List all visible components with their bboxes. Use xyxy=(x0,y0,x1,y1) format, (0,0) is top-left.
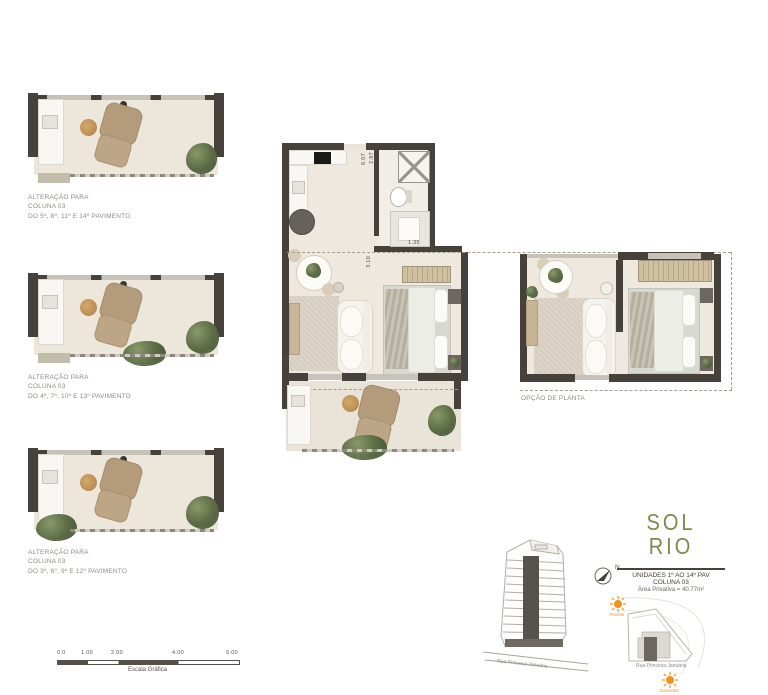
dim-label: 6.07 xyxy=(361,153,367,165)
wall xyxy=(282,143,289,381)
option-plan-caption: OPÇÃO DE PLANTA xyxy=(521,394,585,403)
side-table xyxy=(80,299,97,316)
sofa-cushion xyxy=(585,304,607,338)
sol-rio-logo: SOL RIO xyxy=(617,512,725,559)
unit-info-line: COLUNA 03 xyxy=(617,579,725,586)
sun-east-label: Nascente xyxy=(660,688,679,693)
side-table xyxy=(342,395,359,412)
scale-bar-strip xyxy=(57,660,240,665)
console xyxy=(289,303,300,355)
wall xyxy=(214,93,224,157)
balcony-plan-2 xyxy=(28,273,224,369)
window xyxy=(575,375,609,380)
bed-blanket xyxy=(385,289,409,369)
dim-label: 2.87 xyxy=(369,152,375,164)
logo-line-2: RIO xyxy=(617,534,725,560)
logo-line-1: SOL xyxy=(617,510,725,536)
site-plan xyxy=(598,592,768,695)
highlighted-unit-footprint xyxy=(644,637,657,661)
plant xyxy=(342,435,386,459)
counter-sink xyxy=(42,115,58,129)
bed-blanket xyxy=(630,292,654,368)
wardrobe xyxy=(402,266,451,283)
window xyxy=(308,374,342,380)
compass-north-label: N xyxy=(615,564,620,571)
counter-sink xyxy=(42,295,58,309)
main-floor-plan: 6.07 2.87 1.35 3.10 5.11 xyxy=(282,143,468,465)
sun-west-icon xyxy=(610,596,626,612)
scale-tick-label: 2.00 xyxy=(111,650,123,656)
nightstand xyxy=(448,289,461,304)
planter-box xyxy=(38,353,70,363)
plan-caption-1: ALTERAÇÃO PARA COLUNA 03 DO 5º, 8º, 11º … xyxy=(28,193,130,221)
balcony-counter xyxy=(38,99,64,165)
sofa-cushion xyxy=(340,339,363,370)
scale-tick-label: 1.00 xyxy=(81,650,93,656)
balcony-top-wall xyxy=(38,95,214,100)
wall xyxy=(28,448,38,512)
balcony-counter xyxy=(38,454,64,520)
wall xyxy=(461,252,468,381)
dim-label: 1.35 xyxy=(408,240,420,246)
dining-chair xyxy=(288,249,301,262)
side-table xyxy=(80,119,97,136)
wall xyxy=(342,373,366,381)
unit-info-line: UNIDADES 1º AO 14º PAV xyxy=(617,572,725,579)
option-floor-plan xyxy=(520,252,730,390)
wall xyxy=(28,273,38,337)
counter-sink xyxy=(291,395,305,407)
balcony-rail xyxy=(302,449,454,452)
scale-tick-label: 6.00 xyxy=(226,650,238,656)
bed-pillow xyxy=(434,289,448,323)
kitchen-sink xyxy=(292,181,305,194)
balcony-top-wall xyxy=(38,275,214,280)
toilet-tank xyxy=(406,190,412,203)
sofa-cushion xyxy=(340,306,363,337)
balcony-plan-1 xyxy=(28,93,224,189)
balcony-plan-3 xyxy=(28,448,224,544)
wall xyxy=(418,373,468,381)
wall xyxy=(609,374,714,382)
caption-line: COLUNA 03 xyxy=(28,202,130,211)
console xyxy=(526,300,538,346)
wall xyxy=(282,373,308,381)
counter-sink xyxy=(42,470,58,484)
info-divider xyxy=(617,568,725,570)
plant xyxy=(36,514,76,540)
site-street-label: Rua Princesa Januária xyxy=(636,663,687,669)
bed-pillow xyxy=(682,336,696,368)
wall xyxy=(282,143,344,150)
sofa-cushion xyxy=(585,340,607,374)
unit-info-block: UNIDADES 1º AO 14º PAV COLUNA 03 Área Pr… xyxy=(617,572,725,593)
side-table xyxy=(80,474,97,491)
plan-caption-3: ALTERAÇÃO PARA COLUNA 03 DO 3º, 6º, 9º E… xyxy=(28,548,127,576)
wall xyxy=(454,381,461,409)
compass-icon xyxy=(594,566,614,586)
balcony-counter xyxy=(287,385,311,445)
dim-label: 3.10 xyxy=(366,256,372,268)
balcony-rail xyxy=(70,174,214,177)
highlighted-column xyxy=(523,556,539,640)
scale-tick-label: 0.0 xyxy=(57,650,66,656)
balcony-counter xyxy=(38,279,64,345)
balcony-rail xyxy=(70,529,214,532)
caption-line: COLUNA 03 xyxy=(28,557,127,566)
shower xyxy=(398,151,430,183)
sun-east-icon xyxy=(662,672,678,688)
sofa-back xyxy=(363,302,370,370)
nightstand xyxy=(700,288,713,303)
wall xyxy=(714,254,721,382)
sofa-back xyxy=(606,300,612,374)
caption-line: DO 4º, 7º, 10º E 13º PAVIMENTO xyxy=(28,392,131,401)
caption-line: ALTERAÇÃO PARA xyxy=(28,548,127,557)
planter-box xyxy=(38,173,70,183)
toilet xyxy=(390,187,407,207)
plan-caption-2: ALTERAÇÃO PARA COLUNA 03 DO 4º, 7º, 10º … xyxy=(28,373,131,401)
caption-line: DO 5º, 8º, 11º E 14º PAVIMENTO xyxy=(28,212,130,221)
balcony-rail xyxy=(70,354,214,357)
window xyxy=(648,253,701,259)
wall xyxy=(366,143,435,150)
bed-pillow xyxy=(434,335,448,369)
floor-lamp xyxy=(333,282,344,293)
bed-pillow xyxy=(682,294,696,326)
caption-line: ALTERAÇÃO PARA xyxy=(28,193,130,202)
caption-line: COLUNA 03 xyxy=(28,382,131,391)
construction-dashed-bottom xyxy=(520,390,732,391)
window xyxy=(366,374,418,380)
balcony-top-wall xyxy=(38,450,214,455)
bed-duvet xyxy=(408,287,436,373)
vanity-basin xyxy=(398,217,420,241)
cooktop-icon xyxy=(314,152,331,164)
plant xyxy=(123,341,165,365)
wall xyxy=(520,374,575,382)
scale-bar: 0.0 1.00 2.00 4.00 6.00 Escala Gráfica xyxy=(57,650,238,676)
side-table-lamp xyxy=(600,282,613,295)
entry-door-gap xyxy=(344,144,366,149)
washer-icon xyxy=(289,209,315,235)
bed-duvet xyxy=(654,290,684,372)
wardrobe xyxy=(638,260,712,282)
scale-tick-label: 4.00 xyxy=(172,650,184,656)
sun-west-label: Poente xyxy=(610,612,624,617)
caption-line: DO 3º, 6º, 9º E 12º PAVIMENTO xyxy=(28,567,127,576)
construction-dashed-right xyxy=(731,252,732,390)
scale-bar-caption: Escala Gráfica xyxy=(57,667,238,673)
partition-wall xyxy=(616,260,623,332)
caption-line: ALTERAÇÃO PARA xyxy=(28,373,131,382)
building-elevation xyxy=(483,536,588,674)
wall xyxy=(28,93,38,157)
